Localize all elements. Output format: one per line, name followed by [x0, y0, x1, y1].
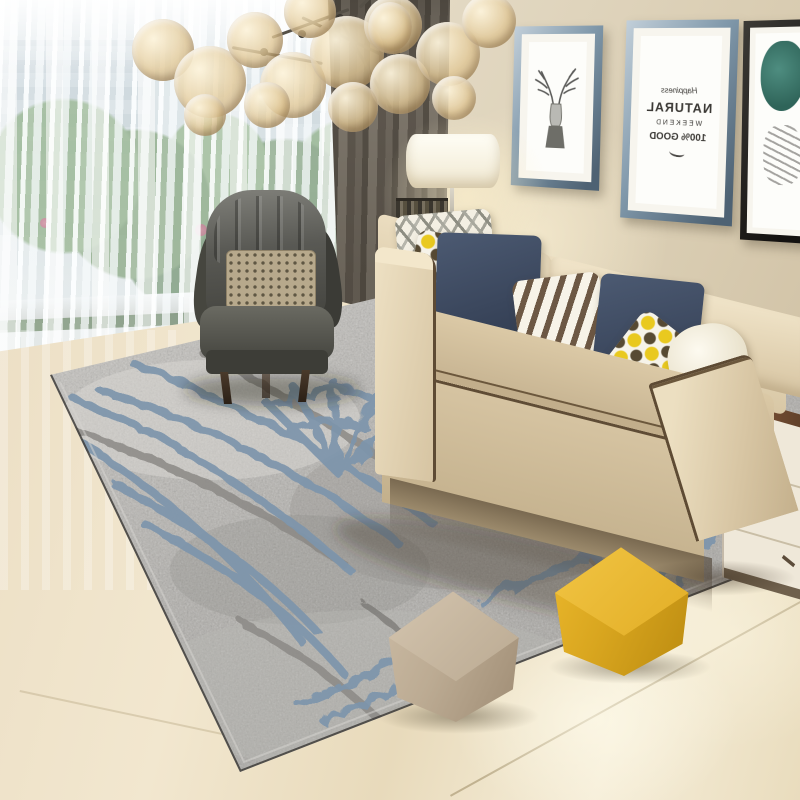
- glass-globe-10: [244, 82, 290, 128]
- glass-globe-11: [184, 94, 226, 136]
- teal-artwork: [752, 32, 800, 230]
- artwork-line-1: Happiness: [661, 85, 698, 95]
- glass-globe-low: [368, 2, 412, 52]
- wall-frame-text: Happiness NATURAL WEEKEND 100% GOOD: [620, 19, 739, 226]
- frame-mat-2: Happiness NATURAL WEEKEND 100% GOOD: [628, 28, 731, 218]
- armchair-leg-left: [220, 372, 232, 404]
- artwork-line-4: 100% GOOD: [649, 130, 706, 143]
- glass-globe-9: [328, 82, 378, 132]
- artwork-line-2: NATURAL: [645, 99, 712, 116]
- text-artwork: Happiness NATURAL WEEKEND 100% GOOD: [635, 36, 722, 209]
- lamp-shade: [406, 134, 500, 188]
- mirrored-text-block: Happiness NATURAL WEEKEND 100% GOOD: [635, 36, 722, 209]
- teal-blob: [760, 40, 800, 111]
- living-room-photo: Happiness NATURAL WEEKEND 100% GOOD: [0, 0, 800, 800]
- wingback-armchair: [198, 188, 338, 400]
- wall-frame-teal: [740, 19, 800, 245]
- artwork-line-3: WEEKEND: [654, 119, 702, 128]
- armchair-leg-right: [298, 370, 310, 402]
- armchair-accent-pillow: [226, 250, 316, 310]
- armchair-leg-center: [262, 374, 270, 398]
- sofa-left-arm: [375, 246, 436, 483]
- glass-globe-14: [462, 0, 516, 48]
- bird-icon: [669, 146, 686, 158]
- frame-mat-3: [747, 26, 800, 237]
- sketch-lines: [763, 125, 800, 186]
